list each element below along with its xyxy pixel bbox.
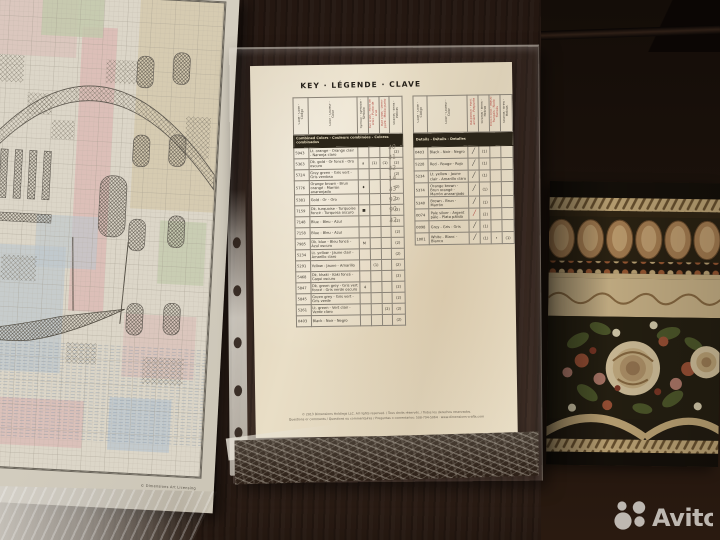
stitch-symbol xyxy=(358,194,370,205)
backstitch-icon: ╱ xyxy=(473,234,476,240)
carpet-pattern xyxy=(546,181,720,467)
avito-logo-icon: Avito xyxy=(613,497,713,533)
cross-stitch-chart-sheet: © Dimensions Art Licensing xyxy=(0,0,240,513)
thread-name: Grey green - Gris vert - Gris verdoso xyxy=(309,169,358,181)
thread-name: Orange brown - Brun orangé - Marrón anar… xyxy=(309,180,358,195)
key-tables: Code - Code - Código Color - Couleur - C… xyxy=(292,94,516,327)
stitch-symbol xyxy=(359,227,371,238)
strand-count: (1) xyxy=(479,170,490,182)
thread-code: 5234 xyxy=(295,250,310,261)
column-header: Full cross - Point de croix - Punto de c… xyxy=(369,98,379,128)
column-header: Backstitch - Point arrière - Pespunte xyxy=(470,97,477,127)
avito-wordmark: Avito xyxy=(652,504,713,532)
handwritten-number: 90 xyxy=(389,205,398,214)
handwritten-number: 41 xyxy=(388,154,397,163)
plastic-glare xyxy=(0,486,224,540)
thread-name: Dk. gold - Or foncé - Oro oscuro xyxy=(309,158,358,170)
handwritten-number: 40 xyxy=(388,143,397,152)
binder-hole xyxy=(233,285,241,296)
stitch-symbol xyxy=(359,260,371,271)
column-header: Strands - Brins - Hebras xyxy=(480,96,487,126)
thread-code: 5374 xyxy=(414,183,429,197)
strand-count: (1) xyxy=(480,182,491,196)
thread-code: 5234 xyxy=(414,171,429,183)
thread-code: 0403 xyxy=(296,316,311,327)
thread-code: 5363 xyxy=(294,159,309,170)
thread-name: White - Blanc - Blanco xyxy=(429,232,469,245)
key-page: KEY · LÉGENDE · CLAVE Code - Code - Códi… xyxy=(250,62,518,438)
cross-stitch-chart xyxy=(0,0,226,479)
key-row: 0403 Black - Noir - Negro (2) xyxy=(296,314,405,327)
stitch-symbol xyxy=(358,216,370,227)
avito-watermark: Avito xyxy=(613,497,713,533)
binder-hole xyxy=(234,337,242,348)
thread-code: 1001 xyxy=(415,233,430,245)
column-header: Color - Couleur - Color xyxy=(329,99,336,129)
handwritten-number: 42 xyxy=(388,164,397,173)
french-knot-icon: • xyxy=(495,236,497,240)
handwritten-annotations: 4041421443929042 xyxy=(388,144,397,224)
backstitch-icon: ╱ xyxy=(473,210,476,216)
stitch-symbol: M xyxy=(359,238,371,249)
stitch-symbol: ♦ xyxy=(358,180,370,194)
strand-count: (2) xyxy=(392,248,405,259)
sheet-protector: KEY · LÉGENDE · CLAVE Code - Code - Códi… xyxy=(229,45,543,484)
strand-count: (2) xyxy=(393,314,406,325)
crinkled-plastic xyxy=(235,431,539,484)
strand-count: (1) xyxy=(479,146,490,158)
thread-name: Dk. turquoise - Turquoise foncé - Turque… xyxy=(309,205,358,217)
handwritten-number: 92 xyxy=(388,195,397,204)
thread-name: Dk. green grey - Gris vert foncé - Gris … xyxy=(310,282,359,294)
backstitch-icon: ╱ xyxy=(473,198,476,204)
thread-code: 5240 xyxy=(414,197,429,209)
column-header: French knot - Nœud français - Nudo franc… xyxy=(490,96,500,126)
key-row: 5374 Orange brown - Brun orangé - Marrón… xyxy=(414,181,513,197)
thread-code: 5724 xyxy=(294,170,309,181)
thread-code: 5381 xyxy=(295,195,310,206)
thread-code: 7159 xyxy=(295,206,310,217)
thread-name: Orange brown - Brun orangé - Marrón anar… xyxy=(429,182,469,197)
thread-code: 0098 xyxy=(415,221,430,233)
key-title: KEY · LÉGENDE · CLAVE xyxy=(300,79,421,90)
thread-name: Brown - Brun - Marrón xyxy=(429,196,469,209)
thread-name: Gold - Or - Oro xyxy=(309,194,358,206)
thread-name: Blue - Bleu - Azul xyxy=(310,227,359,239)
thread-code: 5468 xyxy=(296,272,311,283)
thread-code: 5776 xyxy=(294,181,309,195)
thread-name: Red - Rouge - Rojo xyxy=(428,158,468,171)
thread-code: 7148 xyxy=(295,217,310,228)
thread-code: 0403 xyxy=(413,147,428,159)
binder-edge-strip xyxy=(227,189,247,476)
stitch-symbol xyxy=(360,293,372,304)
stitch-symbol: 4 xyxy=(359,282,371,293)
stitch-symbol xyxy=(358,169,370,180)
handwritten-number: 43 xyxy=(388,185,397,194)
details-table: Code - Code - Código Color - Couleur - C… xyxy=(412,94,515,246)
thread-name: Lt. yellow - Jaune clair - Amarillo clar… xyxy=(310,249,359,261)
strand-count: (2) xyxy=(392,259,405,270)
thread-code: 5847 xyxy=(296,283,311,294)
column-header: Half cross - Demi-point - Medio punto xyxy=(381,98,388,128)
stitch-symbol xyxy=(360,304,372,315)
strand-count: (2) xyxy=(393,303,406,314)
thread-code: 5943 xyxy=(294,148,309,159)
column-header: Strands - Brins - Hebras xyxy=(503,96,510,126)
column-header: Strands - Brins - Hebras xyxy=(392,98,399,128)
backstitch-icon: ╱ xyxy=(472,160,475,166)
backstitch-icon: ╱ xyxy=(473,222,476,228)
strand-count: (2) xyxy=(392,292,405,303)
stitch-symbol: ■ xyxy=(358,205,370,216)
thread-name: Black - Noir - Negro xyxy=(428,146,468,159)
strand-count: (2) xyxy=(392,270,405,281)
key-footer: © 2013 Dimensions Holdings LLC. All righ… xyxy=(255,409,517,423)
strand-count: (2) xyxy=(392,237,405,248)
thread-name: Lt. yellow - Jaune clair - Amarillo clar… xyxy=(428,170,468,183)
strand-count: (1) xyxy=(480,232,491,244)
thread-name: Dk. khaki - Kaki foncé - Caqui oscuro xyxy=(310,271,359,283)
thread-name: Pale silver - Argent pâle - Plata pálida xyxy=(429,208,469,221)
stitch-symbol xyxy=(359,271,371,282)
binder-hole xyxy=(233,237,241,248)
backstitch-icon: ╱ xyxy=(472,185,475,191)
thread-code: 5291 xyxy=(296,261,311,272)
binder-hole xyxy=(234,385,242,396)
thread-code: 5845 xyxy=(296,294,311,305)
chart-pattern xyxy=(0,0,225,478)
thread-code: 5228 xyxy=(414,159,429,171)
photo-scene: © Dimensions Art Licensing KEY · LÉGENDE… xyxy=(0,0,720,540)
column-header: Color - Couleur - Color xyxy=(444,97,451,127)
thread-name: Grey - Gris - Gris xyxy=(429,220,469,233)
stitch-symbol xyxy=(359,249,371,260)
chart-copyright: © Dimensions Art Licensing xyxy=(140,484,196,491)
strand-count: (1) xyxy=(479,158,490,170)
thread-name: Blue - Bleu - Azul xyxy=(309,216,358,228)
stitch-symbol: a xyxy=(357,158,369,169)
column-header: Code - Code - Código xyxy=(417,97,424,127)
thread-name: Yellow - Jaune - Amarillo xyxy=(310,260,359,272)
stitch-symbol xyxy=(360,315,372,326)
column-header: Symbol - Symbole - Símbolo xyxy=(359,98,366,128)
thread-code: 5261 xyxy=(296,305,311,316)
strand-count: (2) xyxy=(392,281,405,292)
ornate-carpet xyxy=(546,181,720,467)
thread-name: Dk. blue - Bleu foncé - Azul oscuro xyxy=(310,238,359,250)
backstitch-icon: ╱ xyxy=(472,148,475,154)
stitch-symbol xyxy=(357,147,369,158)
thread-code: 0074 xyxy=(414,209,429,221)
key-row: 1001 White - Blanc - Blanco ╱ (1) • (1) xyxy=(415,232,514,246)
strand-count: (1) xyxy=(480,220,491,232)
strand-count: (2) xyxy=(480,208,491,220)
backstitch-icon: ╱ xyxy=(472,172,475,178)
thread-name: Lt. orange - Orange clair - Naranja clar… xyxy=(308,147,357,159)
handwritten-number: 42 xyxy=(389,216,398,225)
handwritten-number: 14 xyxy=(388,174,397,183)
thread-code: 7158 xyxy=(295,228,310,239)
thread-name: Black - Noir - Negro xyxy=(311,315,360,327)
strand-count: (2) xyxy=(391,226,404,237)
thread-name: Green grey - Gris vert - Gris verde xyxy=(311,293,360,305)
thread-code: 7985 xyxy=(295,239,310,250)
thread-name: Lt. green - Vert clair - Verde claro xyxy=(311,304,360,316)
strand-count: (1) xyxy=(480,196,491,208)
column-header: Code - Code - Código xyxy=(297,99,304,129)
